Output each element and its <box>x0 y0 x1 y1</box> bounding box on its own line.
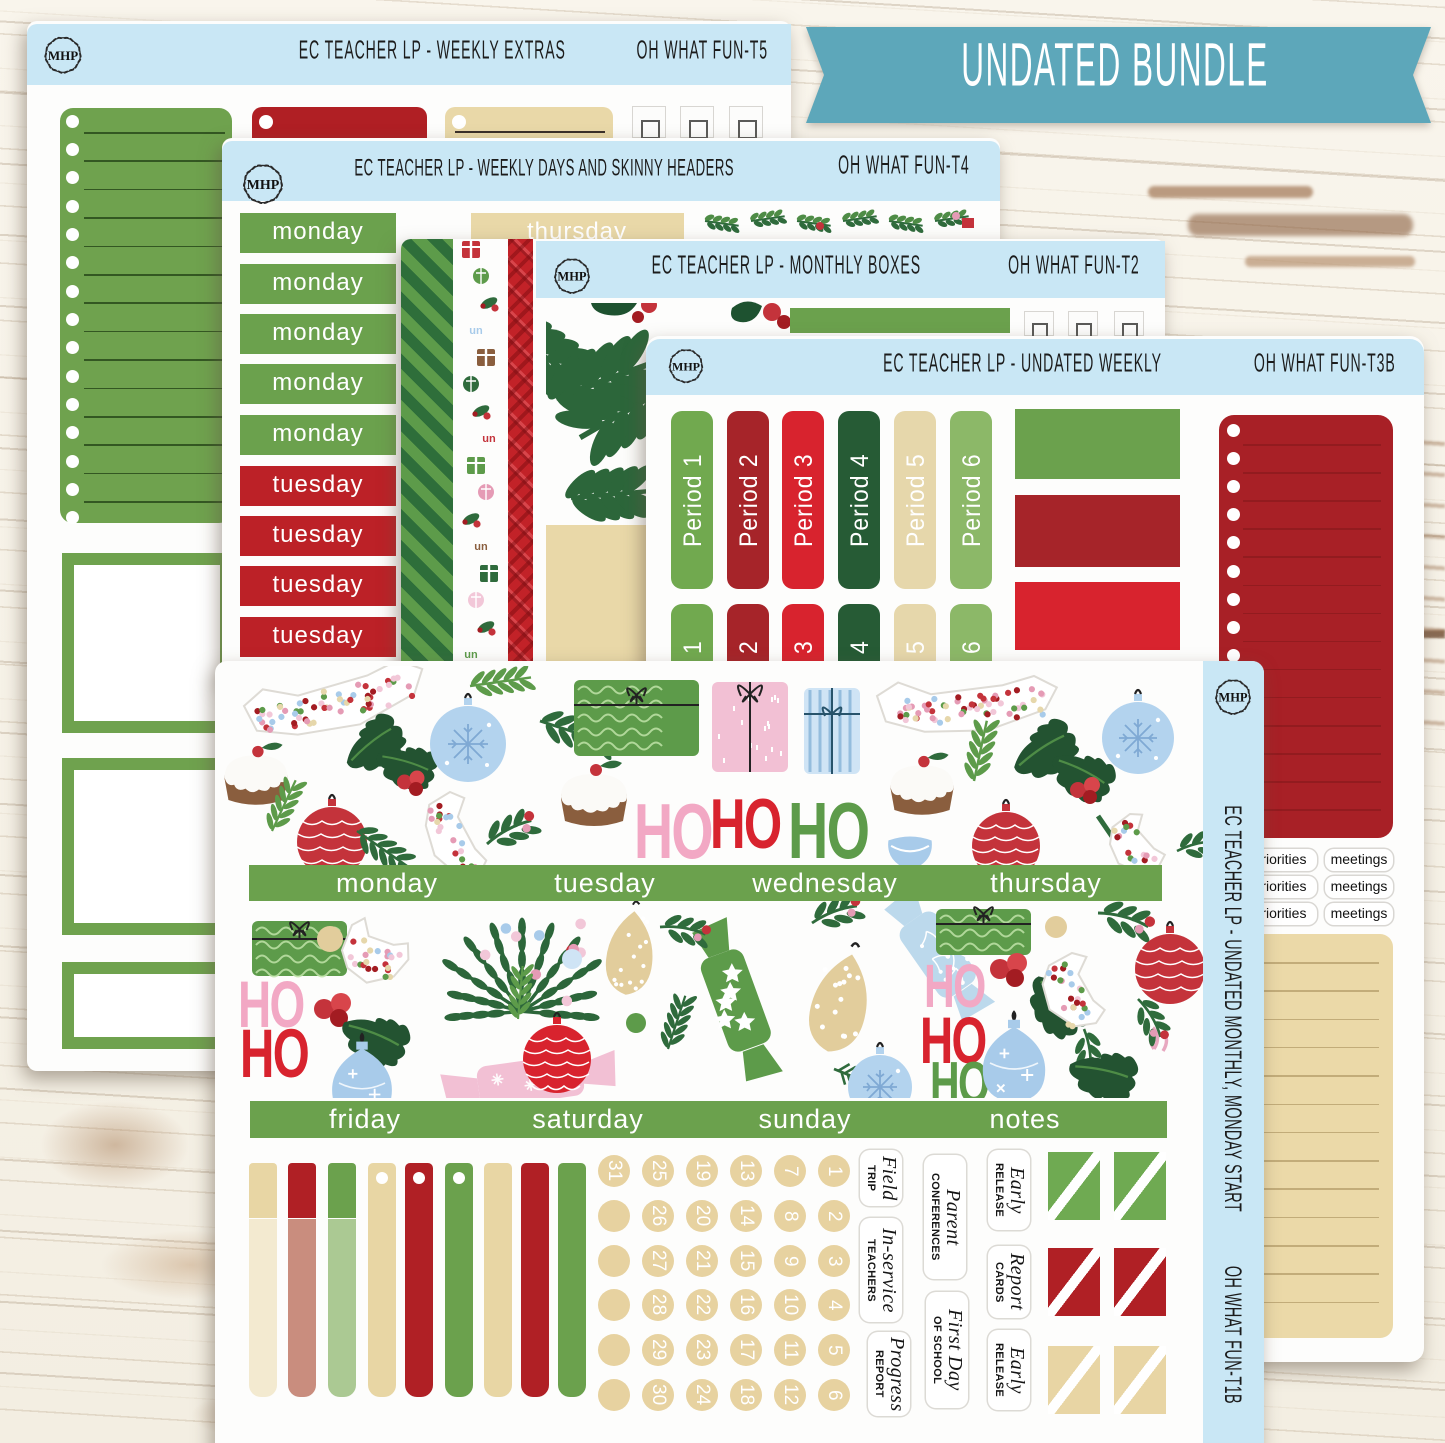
svg-text:HO: HO <box>240 1017 308 1092</box>
svg-text:HO: HO <box>930 1050 989 1098</box>
svg-text:HO: HO <box>788 785 868 865</box>
svg-text:MHP: MHP <box>48 48 78 63</box>
svg-text:MHP: MHP <box>672 359 700 373</box>
svg-text:MHP: MHP <box>1218 691 1248 705</box>
svg-text:MHP: MHP <box>557 270 587 284</box>
svg-text:HO: HO <box>710 784 781 863</box>
svg-text:un: un <box>482 433 496 445</box>
svg-text:un: un <box>474 541 488 553</box>
svg-text:un: un <box>469 325 483 337</box>
svg-text:MHP: MHP <box>247 178 280 193</box>
svg-text:un: un <box>464 649 478 661</box>
svg-text:HO: HO <box>634 788 712 865</box>
